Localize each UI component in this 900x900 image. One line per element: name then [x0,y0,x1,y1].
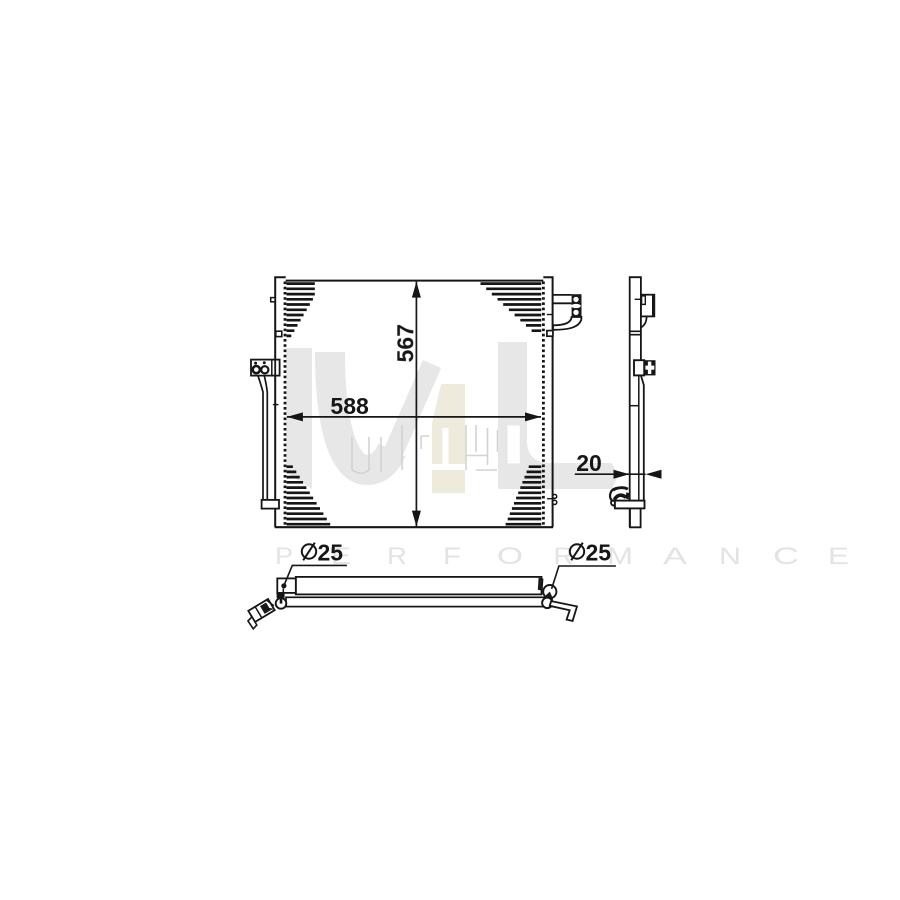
svg-text:O: O [497,543,523,570]
svg-text:P: P [275,543,293,570]
svg-text:C: C [773,543,799,570]
svg-text:588: 588 [330,393,369,419]
svg-text:25: 25 [585,539,611,565]
svg-text:20: 20 [576,450,602,476]
svg-text:25: 25 [317,539,343,565]
svg-text:R: R [387,543,407,570]
svg-text:567: 567 [392,324,418,362]
svg-text:N: N [719,543,741,570]
svg-text:E: E [828,543,849,570]
svg-text:F: F [443,543,461,570]
svg-text:A: A [663,543,687,570]
